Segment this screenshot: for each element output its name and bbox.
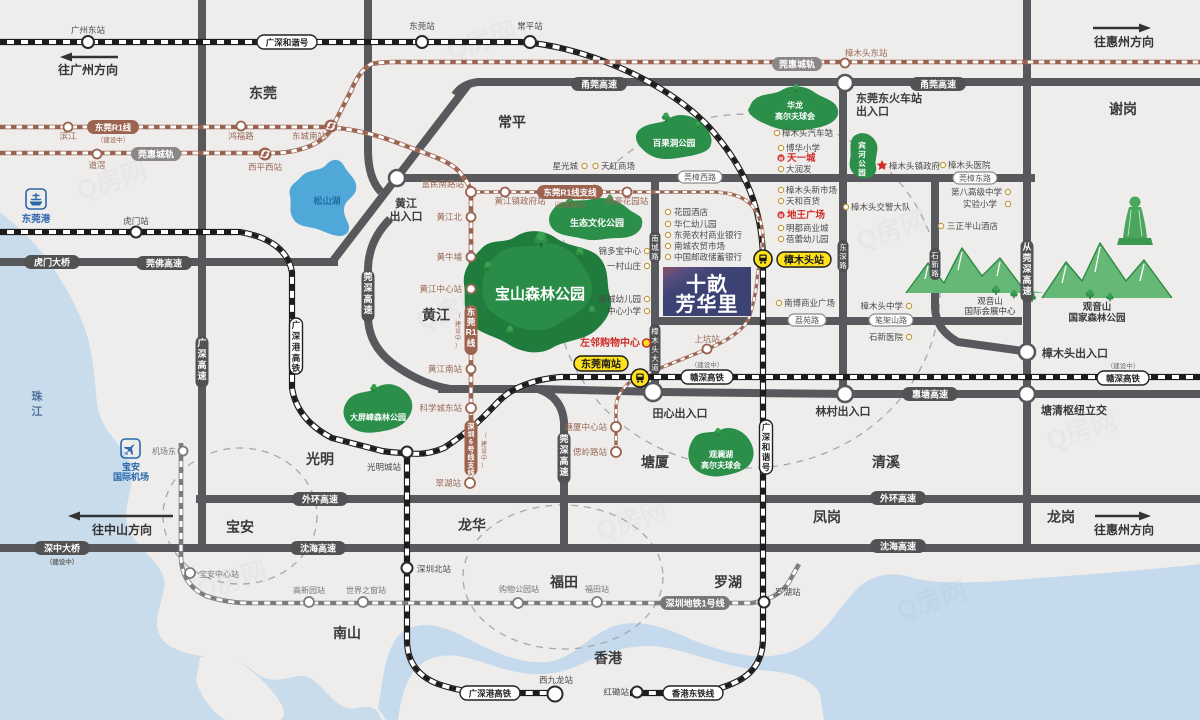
svg-text:木: 木 — [651, 335, 659, 345]
svg-text:莞: 莞 — [558, 433, 568, 444]
svg-text:虎门站: 虎门站 — [123, 216, 149, 226]
svg-text:广州东站: 广州东站 — [71, 25, 106, 35]
svg-text:莞樟东路: 莞樟东路 — [959, 173, 991, 183]
svg-text:黄江镇政府站: 黄江镇政府站 — [494, 196, 546, 206]
svg-text:鸿福路: 鸿福路 — [228, 131, 254, 141]
svg-text:福田: 福田 — [549, 574, 578, 590]
svg-text:芳华里: 芳华里 — [676, 292, 739, 316]
svg-text:线: 线 — [467, 338, 476, 348]
svg-text:往惠州方向: 往惠州方向 — [1094, 34, 1154, 49]
svg-text:樟木头新市场: 樟木头新市场 — [786, 185, 837, 195]
svg-text:线: 线 — [468, 468, 475, 477]
svg-text:出入口: 出入口 — [856, 104, 889, 118]
svg-text:观音山: 观音山 — [977, 296, 1003, 306]
svg-text:荔苑路: 荔苑路 — [795, 315, 819, 325]
svg-text:路: 路 — [651, 251, 659, 261]
svg-text:大屏嶂森林公园: 大屏嶂森林公园 — [350, 412, 406, 422]
svg-text:甬莞高速: 甬莞高速 — [920, 79, 956, 90]
svg-text:港: 港 — [292, 342, 301, 352]
svg-text:博华小学: 博华小学 — [786, 143, 821, 153]
svg-text:宝安: 宝安 — [226, 519, 254, 535]
svg-text:路: 路 — [931, 268, 939, 278]
svg-text:铁: 铁 — [292, 363, 301, 373]
svg-text:从: 从 — [1022, 242, 1031, 252]
svg-text:园: 园 — [858, 168, 866, 177]
svg-text:龙岗: 龙岗 — [1046, 509, 1075, 525]
svg-text:中: 中 — [455, 334, 461, 342]
svg-text:6: 6 — [469, 439, 473, 446]
svg-text:江: 江 — [32, 404, 43, 418]
svg-text:莞惠城轨: 莞惠城轨 — [137, 149, 174, 160]
svg-text:东莞南站: 东莞南站 — [581, 358, 621, 371]
svg-text:天虹商场: 天虹商场 — [601, 161, 635, 171]
svg-text:深: 深 — [468, 422, 475, 431]
svg-text:西九龙站: 西九龙站 — [539, 675, 574, 685]
svg-text:富民南路站: 富民南路站 — [421, 179, 464, 189]
svg-text:广: 广 — [197, 337, 206, 348]
svg-text:石新医院: 石新医院 — [869, 332, 904, 342]
svg-text:宾: 宾 — [858, 140, 866, 150]
svg-text:深圳地铁1号线: 深圳地铁1号线 — [665, 598, 724, 609]
svg-text:翠湖站: 翠湖站 — [435, 478, 461, 488]
svg-text:W: W — [779, 214, 784, 220]
svg-text:蓓蕾幼儿园: 蓓蕾幼儿园 — [786, 234, 829, 244]
svg-text:机场东: 机场东 — [152, 446, 176, 456]
svg-text:国际会展中心: 国际会展中心 — [964, 306, 1016, 316]
svg-text:南城农贸市场: 南城农贸市场 — [674, 241, 725, 251]
svg-text:（建设中）: （建设中） — [691, 360, 724, 369]
svg-text:樟木头出入口: 樟木头出入口 — [1041, 346, 1108, 360]
svg-text:W: W — [779, 157, 784, 163]
svg-text:号: 号 — [762, 462, 771, 472]
svg-text:塘厦: 塘厦 — [641, 454, 670, 470]
svg-text:建: 建 — [481, 440, 487, 448]
svg-text:谢岗: 谢岗 — [1109, 101, 1137, 117]
svg-text:清溪: 清溪 — [872, 454, 901, 470]
svg-text:偲岭路站: 偲岭路站 — [573, 447, 608, 457]
svg-text:莞樟西路: 莞樟西路 — [684, 172, 716, 182]
svg-text:樟木头站: 樟木头站 — [784, 254, 824, 267]
svg-text:往广州方向: 往广州方向 — [58, 62, 118, 77]
svg-text:大润发: 大润发 — [786, 164, 812, 174]
svg-text:深: 深 — [762, 432, 771, 442]
svg-text:往惠州方向: 往惠州方向 — [1094, 522, 1154, 537]
svg-text:莞佛高速: 莞佛高速 — [145, 258, 182, 269]
svg-text:深: 深 — [363, 282, 372, 293]
svg-text:东莞农村商业银行: 东莞农村商业银行 — [674, 230, 743, 240]
svg-text:大: 大 — [651, 353, 659, 363]
svg-text:樟木头汽车站: 樟木头汽车站 — [782, 128, 834, 138]
svg-text:国家森林公园: 国家森林公园 — [1068, 312, 1125, 324]
svg-text:设: 设 — [455, 327, 461, 335]
svg-text:号: 号 — [468, 445, 475, 454]
svg-text:深: 深 — [197, 348, 206, 359]
svg-text:星光城: 星光城 — [552, 161, 578, 171]
svg-text:）: ） — [455, 343, 461, 350]
svg-text:常平站: 常平站 — [517, 21, 543, 31]
svg-text:南城幼儿园: 南城幼儿园 — [598, 294, 641, 304]
svg-text:往中山方向: 往中山方向 — [92, 522, 152, 537]
svg-text:道: 道 — [651, 362, 659, 372]
svg-text:塘厦中心站: 塘厦中心站 — [564, 422, 607, 432]
svg-text:南博商业广场: 南博商业广场 — [784, 298, 835, 308]
svg-text:（建设中）: （建设中） — [97, 135, 130, 144]
svg-text:南: 南 — [651, 233, 659, 243]
svg-text:明都商业城: 明都商业城 — [786, 223, 829, 233]
svg-text:广: 广 — [292, 320, 301, 330]
svg-text:宝安: 宝安 — [122, 461, 140, 472]
svg-text:石: 石 — [931, 251, 939, 260]
svg-text:华仁幼儿园: 华仁幼儿园 — [674, 219, 717, 229]
svg-text:中: 中 — [481, 454, 487, 462]
svg-text:莞惠城轨: 莞惠城轨 — [778, 59, 815, 70]
svg-text:百果洞公园: 百果洞公园 — [653, 138, 696, 148]
svg-text:赣深高铁: 赣深高铁 — [690, 373, 725, 383]
svg-text:黄牛埔: 黄牛埔 — [436, 252, 462, 262]
svg-text:高: 高 — [363, 293, 372, 304]
svg-text:深: 深 — [1022, 263, 1031, 274]
svg-text:外环高速: 外环高速 — [301, 494, 338, 505]
svg-text:实验小学: 实验小学 — [963, 199, 998, 209]
svg-text:世界之窗站: 世界之窗站 — [346, 585, 386, 595]
svg-text:宝山森林公园: 宝山森林公园 — [495, 285, 585, 303]
svg-text:东: 东 — [839, 242, 847, 252]
svg-text:上坑站: 上坑站 — [694, 334, 720, 344]
svg-text:和: 和 — [762, 442, 771, 452]
svg-text:高: 高 — [292, 353, 301, 363]
svg-text:出入口: 出入口 — [390, 209, 423, 223]
svg-text:）: ） — [481, 463, 487, 470]
svg-text:天和百货: 天和百货 — [786, 196, 821, 206]
svg-text:高: 高 — [197, 359, 206, 370]
svg-text:滨江: 滨江 — [59, 131, 77, 141]
svg-text:田心出入口: 田心出入口 — [653, 406, 708, 420]
svg-text:帝豪花园站: 帝豪花园站 — [606, 196, 649, 206]
svg-text:龙华: 龙华 — [457, 517, 486, 533]
svg-text:河: 河 — [858, 149, 866, 159]
svg-text:花园酒店: 花园酒店 — [674, 207, 709, 217]
svg-text:深: 深 — [559, 444, 568, 455]
svg-text:沈海高速: 沈海高速 — [300, 543, 336, 554]
svg-text:天一城: 天一城 — [787, 152, 816, 164]
svg-text:生态文化公园: 生态文化公园 — [570, 217, 624, 228]
svg-text:红磡站: 红磡站 — [603, 687, 629, 697]
svg-text:南山: 南山 — [333, 625, 361, 641]
svg-text:高尔夫球会: 高尔夫球会 — [775, 111, 815, 121]
svg-text:笔架山路: 笔架山路 — [875, 315, 907, 325]
svg-text:樟木头医院: 樟木头医院 — [948, 160, 991, 170]
svg-text:广深港高铁: 广深港高铁 — [469, 689, 512, 699]
svg-text:深圳北站: 深圳北站 — [417, 564, 452, 574]
svg-text:凤岗: 凤岗 — [813, 509, 841, 525]
svg-text:华龙: 华龙 — [787, 100, 803, 110]
svg-text:头: 头 — [651, 344, 659, 354]
svg-text:沈海高速: 沈海高速 — [880, 541, 916, 552]
svg-text:中国邮政储蓄银行: 中国邮政储蓄银行 — [674, 252, 743, 262]
svg-text:R1: R1 — [466, 327, 477, 337]
svg-text:东莞R1线支线: 东莞R1线支线 — [543, 188, 597, 198]
svg-text:国际机场: 国际机场 — [113, 471, 149, 482]
svg-text:黄江: 黄江 — [395, 196, 417, 210]
svg-text:樟: 樟 — [651, 326, 659, 336]
svg-text:东莞R1线: 东莞R1线 — [95, 123, 132, 133]
svg-text:一村山庄: 一村山庄 — [607, 261, 642, 271]
svg-text:设: 设 — [481, 447, 487, 455]
svg-text:赣深高铁: 赣深高铁 — [1106, 374, 1141, 384]
svg-text:松山湖: 松山湖 — [313, 195, 340, 206]
svg-text:高: 高 — [1022, 274, 1031, 285]
svg-text:科学城东站: 科学城东站 — [419, 403, 462, 413]
svg-text:广: 广 — [762, 422, 771, 432]
svg-text:三正半山酒店: 三正半山酒店 — [947, 221, 999, 231]
svg-text:光明城站: 光明城站 — [367, 462, 402, 472]
svg-text:（远期规划）: （远期规划） — [551, 200, 590, 209]
svg-text:光明: 光明 — [305, 451, 334, 467]
svg-text:黄江北: 黄江北 — [436, 212, 462, 222]
svg-text:城: 城 — [651, 243, 659, 252]
svg-text:惠塘高速: 惠塘高速 — [912, 389, 948, 400]
svg-text:观澜湖: 观澜湖 — [709, 449, 733, 459]
svg-text:路: 路 — [839, 260, 847, 270]
svg-text:深中大桥: 深中大桥 — [44, 543, 81, 554]
svg-text:罗湖站: 罗湖站 — [775, 587, 801, 597]
svg-text:速: 速 — [363, 304, 372, 315]
svg-text:（: （ — [481, 433, 487, 440]
svg-text:深: 深 — [292, 331, 301, 341]
svg-text:锦多宝中心: 锦多宝中心 — [598, 246, 641, 256]
svg-text:黄江南站: 黄江南站 — [428, 364, 463, 374]
svg-text:购物公园站: 购物公园站 — [499, 584, 539, 594]
svg-text:支: 支 — [467, 461, 476, 470]
svg-text:（建设中）: （建设中） — [1107, 361, 1140, 370]
svg-text:外环高速: 外环高速 — [879, 493, 916, 504]
svg-text:东莞: 东莞 — [249, 85, 277, 101]
svg-text:圳: 圳 — [468, 430, 475, 439]
svg-text:常平: 常平 — [498, 114, 526, 130]
svg-text:高尔夫球会: 高尔夫球会 — [701, 460, 741, 470]
svg-text:莞: 莞 — [1021, 252, 1031, 263]
svg-text:樟木头镇政府: 樟木头镇政府 — [889, 161, 941, 171]
svg-text:香港: 香港 — [593, 650, 623, 666]
svg-text:东城南站: 东城南站 — [292, 131, 327, 141]
svg-text:西平西站: 西平西站 — [248, 162, 283, 172]
svg-text:林村出入口: 林村出入口 — [816, 404, 871, 418]
svg-text:速: 速 — [1022, 285, 1031, 296]
svg-text:樟木头中学: 樟木头中学 — [860, 301, 903, 311]
svg-text:樟木头东站: 樟木头东站 — [845, 48, 888, 58]
svg-text:东莞东火车站: 东莞东火车站 — [856, 91, 922, 105]
svg-text:罗湖: 罗湖 — [714, 574, 742, 590]
svg-text:高: 高 — [559, 455, 568, 466]
svg-text:观音山: 观音山 — [1082, 301, 1112, 313]
svg-text:甬莞高速: 甬莞高速 — [581, 79, 617, 90]
svg-text:虎门大桥: 虎门大桥 — [34, 257, 71, 268]
svg-text:广深和谐号: 广深和谐号 — [266, 38, 309, 48]
svg-text:公: 公 — [858, 159, 866, 168]
svg-text:速: 速 — [197, 370, 206, 381]
svg-text:东莞港: 东莞港 — [22, 213, 51, 225]
svg-text:线: 线 — [468, 453, 475, 462]
svg-text:速: 速 — [559, 466, 568, 477]
svg-text:左邻购物中心: 左邻购物中心 — [579, 336, 640, 349]
svg-text:东莞站: 东莞站 — [409, 21, 435, 31]
svg-text:中心小学: 中心小学 — [607, 306, 642, 316]
svg-text:深: 深 — [839, 252, 847, 261]
svg-text:（建设中）: （建设中） — [46, 557, 79, 566]
svg-text:新: 新 — [931, 259, 939, 269]
svg-text:第八高级中学: 第八高级中学 — [951, 187, 1003, 197]
svg-text:地王广场: 地王广场 — [787, 209, 826, 221]
svg-text:珠: 珠 — [32, 389, 44, 403]
svg-text:香港东铁线: 香港东铁线 — [671, 689, 715, 699]
svg-text:莞: 莞 — [362, 271, 372, 282]
svg-text:福田站: 福田站 — [585, 584, 609, 594]
svg-text:高新园站: 高新园站 — [293, 585, 325, 595]
svg-text:谐: 谐 — [762, 452, 771, 462]
svg-text:十畝: 十畝 — [686, 272, 728, 296]
